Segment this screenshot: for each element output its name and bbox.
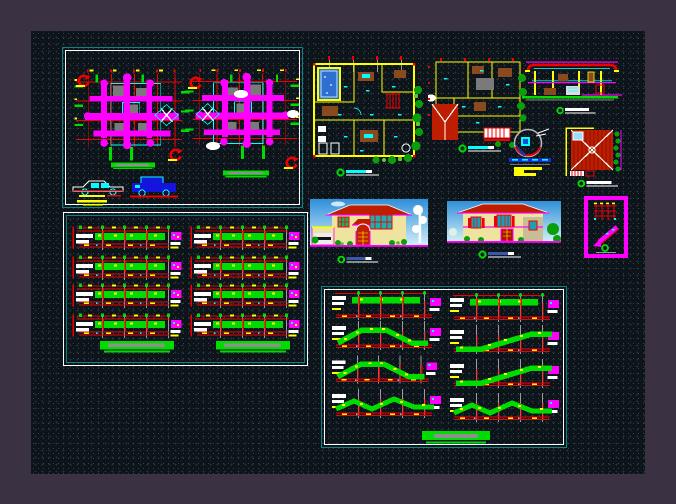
scale-marker-side-elevation[interactable] [477,250,525,259]
stair-sections-drawing[interactable] [322,287,566,447]
furniture-plan-ground[interactable] [308,56,426,168]
sheet-stair-sections[interactable] [321,286,567,448]
front-elevation-render[interactable] [308,197,430,253]
scale-marker-roof-plan[interactable] [577,179,621,188]
framing-plans-drawing[interactable] [63,48,302,207]
sheet-beam-elevations[interactable] [63,212,308,366]
stair-detail-callout[interactable] [584,196,628,258]
scale-marker-section[interactable] [556,106,598,115]
stair-detail-drawing [588,200,624,254]
sheet-framing-plans[interactable] [62,47,303,208]
scale-marker-front-elevation[interactable] [337,255,381,264]
cad-workspace [0,0,676,504]
side-elevation-render[interactable] [445,199,563,249]
building-section[interactable] [522,60,622,102]
beam-elevations-drawing[interactable] [64,213,307,365]
scale-marker-plan-ground[interactable] [336,168,382,177]
column-detail[interactable] [508,126,556,178]
scale-marker-plan-upper[interactable] [458,144,504,153]
roof-plan[interactable] [564,124,622,178]
